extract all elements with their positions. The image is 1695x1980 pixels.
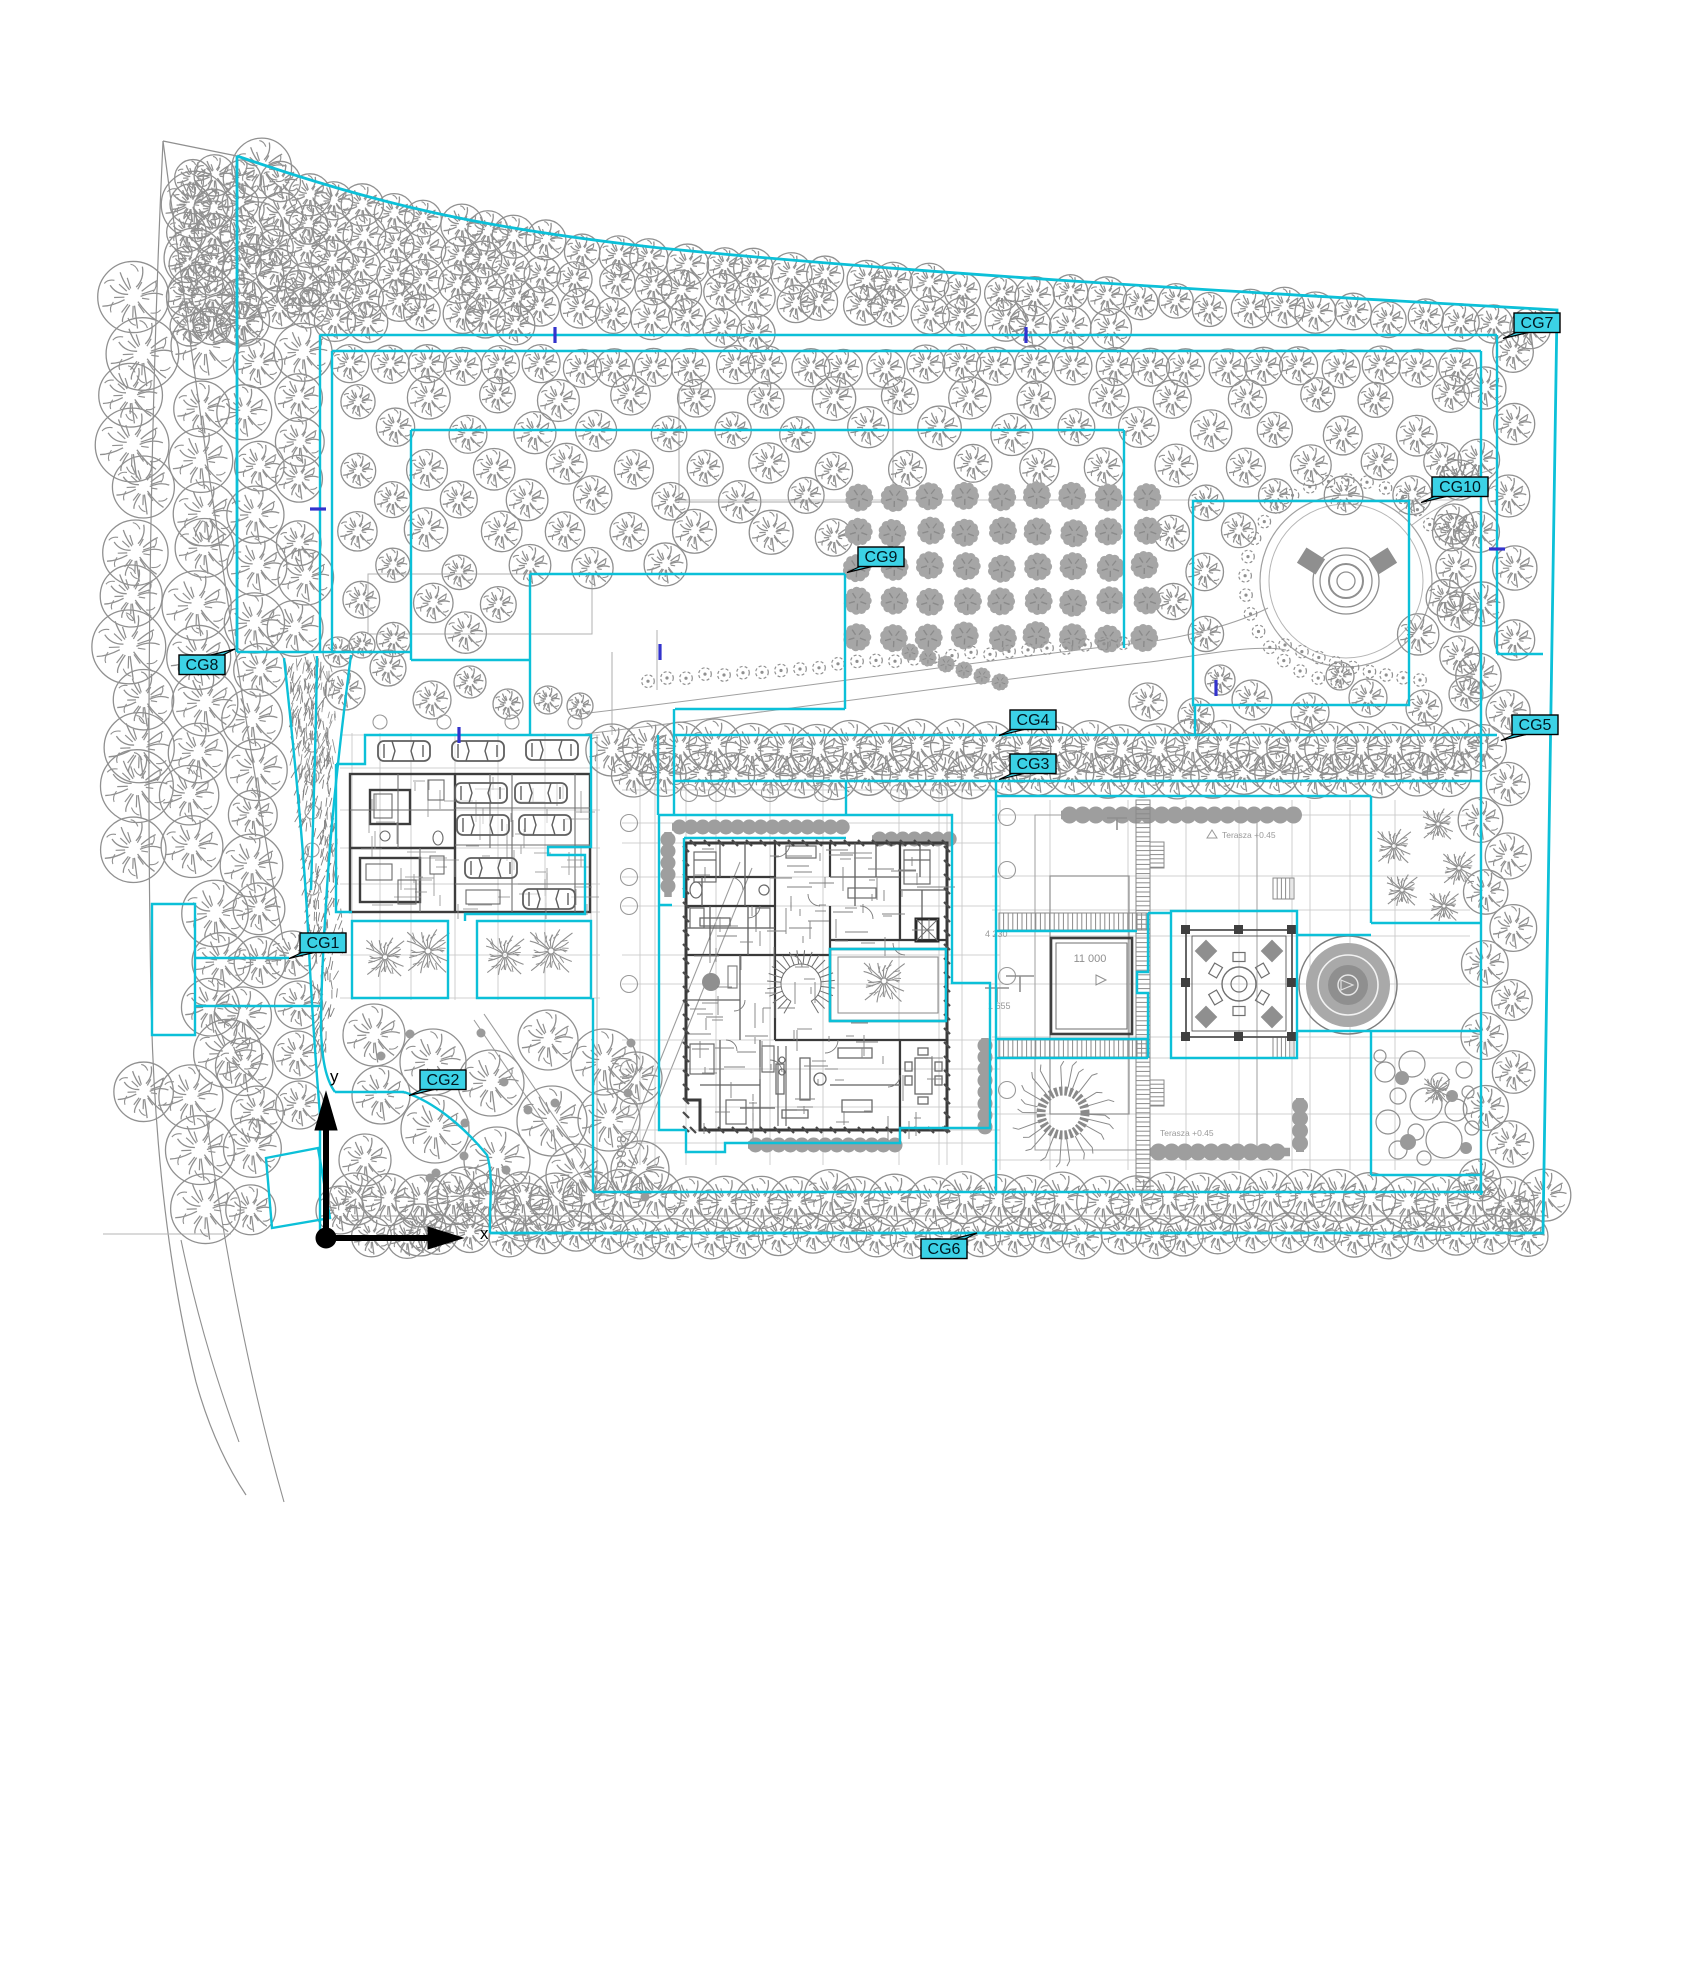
svg-text:1 655: 1 655 [988,1001,1011,1011]
svg-text:CG8: CG8 [186,657,219,674]
svg-text:CG7: CG7 [1521,315,1554,332]
svg-text:Terasza +0.45: Terasza +0.45 [1222,830,1276,840]
svg-text:CG2: CG2 [427,1072,460,1089]
svg-text:CG1: CG1 [307,935,340,952]
svg-text:y: y [330,1067,339,1086]
svg-text:11 000: 11 000 [1074,953,1107,965]
svg-text:x: x [480,1224,489,1243]
svg-text:CG6: CG6 [928,1241,961,1258]
svg-text:CG9: CG9 [865,549,898,566]
svg-text:Terasza +0.45: Terasza +0.45 [1160,1128,1214,1138]
svg-text:CG5: CG5 [1519,717,1552,734]
svg-text:CG10: CG10 [1439,479,1481,496]
svg-text:CG4: CG4 [1017,712,1050,729]
svg-text:CG3: CG3 [1017,756,1050,773]
